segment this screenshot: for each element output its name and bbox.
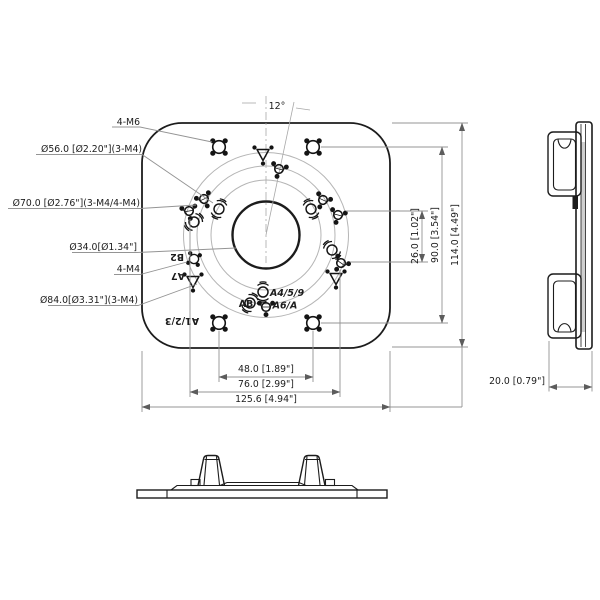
dim-label-114: 114.0 [4.49"] xyxy=(450,204,461,266)
engraved-label-ab: AB xyxy=(239,299,254,310)
drawing-page: 12° B2 A7 A1/2/3 AB A4/5/9 A6/A 4-M6 xyxy=(0,0,600,600)
callout-d56-label: Ø56.0 [Ø2.20"](3-M4) xyxy=(41,144,142,155)
hook-latch-detail xyxy=(573,196,579,209)
foot-facets xyxy=(305,457,321,486)
engraved-label-b2: B2 xyxy=(170,251,184,262)
base-plate-edge xyxy=(137,490,387,498)
engraved-label-a459: A4/5/9 xyxy=(269,288,305,299)
foot-nub xyxy=(326,480,335,486)
technical-drawing: 12° B2 A7 A1/2/3 AB A4/5/9 A6/A 4-M6 xyxy=(0,0,600,600)
dim-label-48: 48.0 [1.89"] xyxy=(238,364,294,375)
callout-4m6-label: 4-M6 xyxy=(117,117,140,128)
dim-label-76: 76.0 [2.99"] xyxy=(238,379,294,390)
side-view: 20.0 [0.79"] xyxy=(489,122,592,392)
dim-label-90: 90.0 [3.54"] xyxy=(430,207,441,263)
hook-inner xyxy=(554,281,576,332)
callout-d70-label: Ø70.0 [Ø2.76"](3-M4/4-M4) xyxy=(13,198,140,209)
front-view: 12° B2 A7 A1/2/3 AB A4/5/9 A6/A 4-M6 xyxy=(8,96,468,412)
side-hook-upper xyxy=(548,132,581,209)
mount-foot-left xyxy=(191,456,225,486)
hook-inner xyxy=(554,139,576,190)
hook-notch xyxy=(558,140,571,149)
mount-foot-right xyxy=(299,456,335,486)
dim-label-26: 26.0 [1.02"] xyxy=(410,208,421,264)
engraved-label-a7: A7 xyxy=(171,270,185,281)
callout-4m4-label: 4-M4 xyxy=(117,264,140,275)
bottom-view xyxy=(137,456,387,499)
engraved-label-a123: A1/2/3 xyxy=(165,315,199,326)
callout-d34-label: Ø34.0[Ø1.34"] xyxy=(69,242,137,253)
hook-notch xyxy=(558,324,571,332)
dim-label-20: 20.0 [0.79"] xyxy=(489,376,545,387)
angle-tick-right xyxy=(296,108,310,110)
angle-label: 12° xyxy=(269,101,286,112)
foot-facets xyxy=(204,457,220,486)
callout-d84-label: Ø84.0[Ø3.31"](3-M4) xyxy=(40,295,138,306)
dim-label-1256: 125.6 [4.94"] xyxy=(235,394,297,405)
engraved-label-a6a: A6/A xyxy=(272,301,298,312)
